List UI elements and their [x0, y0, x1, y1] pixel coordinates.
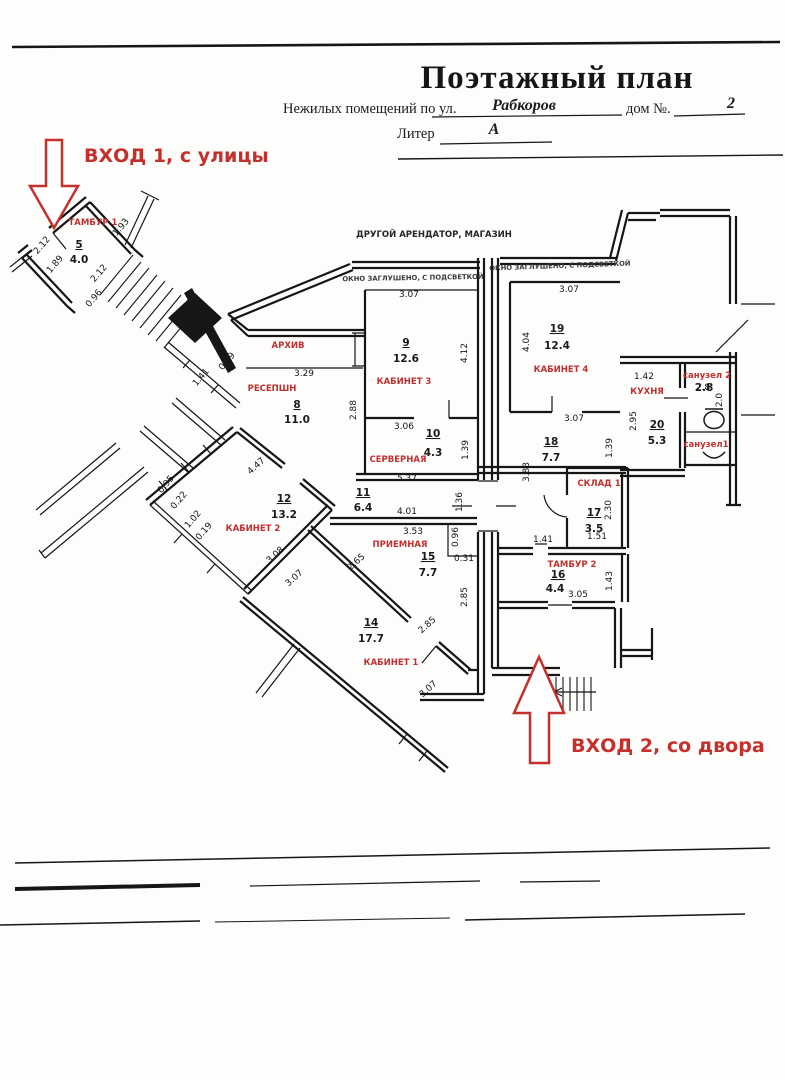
- room-name-label: КУХНЯ: [630, 387, 664, 397]
- dimension-label: 3.07: [564, 414, 584, 424]
- dimension-label: 3.07: [284, 568, 306, 589]
- entrance-1-label: ВХОД 1, с улицы: [84, 145, 269, 167]
- room-number-label: 18: [544, 436, 559, 448]
- dimension-label: 3.06: [394, 422, 414, 432]
- door-arc: [544, 495, 567, 517]
- room-number-label: 8: [293, 399, 300, 411]
- dimension-label: 4.04: [522, 332, 532, 352]
- toilet-icon: [704, 412, 724, 429]
- dimension-label: 0.22: [169, 490, 190, 512]
- room-area-label: 13.2: [271, 509, 297, 521]
- room-name-label: ПРИЕМНАЯ: [373, 540, 428, 550]
- dimension-label: 3.83: [522, 462, 532, 482]
- room-name-label: РЕСЕПШН: [248, 384, 297, 394]
- dimension-label: 3.07: [399, 290, 419, 300]
- room-area-label: 12.6: [393, 353, 419, 365]
- entrance-2-label: ВХОД 2, со двора: [571, 735, 765, 757]
- room-name-label: санузел 2: [683, 371, 731, 381]
- sink-icon: [703, 452, 725, 458]
- room-number-label: 20: [650, 419, 665, 431]
- room-area-label: 12.4: [544, 340, 570, 352]
- bathroom-fixtures: [703, 409, 725, 458]
- room-name-label: санузел1: [683, 440, 728, 450]
- dimension-label: 3.07: [559, 285, 579, 295]
- dimension-label: 0.19: [194, 521, 215, 543]
- room-number-label: 12: [277, 493, 292, 505]
- room-name-label: КАБИНЕТ 3: [377, 377, 432, 387]
- room-name-label: ТАМБУР 1: [69, 218, 118, 228]
- dimension-label: 4.47: [246, 456, 268, 477]
- plan-note-label: ОКНО ЗАГЛУШЕНО, С ПОДСВЕТКОЙ: [342, 272, 484, 283]
- street-value: Рабкоров: [491, 97, 556, 114]
- address-prefix: Нежилых помещений по ул.: [283, 101, 457, 117]
- room-number-label: 14: [364, 617, 379, 629]
- dimension-label: 3.05: [568, 590, 588, 600]
- room-name-label: КАБИНЕТ 1: [364, 658, 419, 668]
- dimension-label: 1.41: [533, 535, 553, 545]
- dimension-label: 3.07: [418, 679, 440, 700]
- room-name-label: КАБИНЕТ 4: [534, 365, 589, 375]
- dimension-label: 1.39: [605, 438, 615, 458]
- room-name-label: КАБИНЕТ 2: [226, 524, 281, 534]
- title-block: Поэтажный план Нежилых помещений по ул. …: [283, 60, 735, 142]
- plan-note-label: ОКНО ЗАГЛУШЕНО, С ПОДСВЕТКОЙ: [489, 259, 631, 273]
- plan-labels: ТАМБУР 154.0АРХИВРЕСЕПШН811.0КАБИНЕТ 391…: [32, 145, 764, 757]
- dimension-label: 1.51: [587, 532, 607, 542]
- room-number-label: 9: [402, 337, 409, 349]
- house-label: дом №.: [626, 101, 671, 117]
- dimension-label: 2.85: [417, 615, 439, 636]
- room-area-label: 4.4: [546, 583, 565, 595]
- dimension-label: 2.88: [349, 400, 359, 420]
- room-area-label: 17.7: [358, 633, 384, 645]
- house-number-value: 2: [726, 95, 735, 112]
- dimension-label: 2.12: [32, 235, 53, 257]
- room-number-label: 16: [551, 569, 566, 581]
- room-name-label: СКЛАД 1: [577, 479, 620, 489]
- dimension-label: 2.95: [629, 411, 639, 431]
- dimension-label: 2.30: [604, 500, 614, 520]
- dimension-label: 2.85: [460, 587, 470, 607]
- entrance-2-arrow-icon: [514, 657, 564, 763]
- floor-plan-drawing: Поэтажный план Нежилых помещений по ул. …: [0, 0, 785, 1080]
- scan-artifact-lines: [0, 848, 770, 925]
- entrance-1-arrow-icon: [30, 140, 78, 228]
- dimension-label: 4.12: [460, 343, 470, 363]
- staircase-top: [100, 255, 197, 348]
- room-number-label: 17: [587, 507, 602, 519]
- liter-label: Литер: [397, 126, 435, 142]
- page-title: Поэтажный план: [421, 60, 694, 96]
- room-area-label: 4.3: [424, 447, 443, 459]
- dimension-label: 2.0: [715, 393, 725, 408]
- dimension-label: 1.42: [634, 372, 654, 382]
- room-name-label: АРХИВ: [272, 341, 305, 351]
- dimension-label: 1.39: [461, 440, 471, 460]
- dimension-label: 1.36: [455, 492, 465, 512]
- dimension-label: 2.12: [89, 263, 110, 285]
- room-number-label: 11: [356, 487, 371, 499]
- dimension-label: 5.37: [397, 474, 417, 484]
- dimension-label: 2.65: [346, 552, 368, 573]
- dimension-label: 3.29: [294, 369, 314, 379]
- dimension-label: 0.96: [451, 527, 461, 547]
- room-area-label: 4.0: [70, 254, 89, 266]
- dimension-label: 1.43: [605, 571, 615, 591]
- dimension-label: 2.8: [696, 383, 711, 393]
- room-name-label: СЕРВЕРНАЯ: [369, 455, 426, 465]
- room-number-label: 5: [75, 239, 82, 251]
- dimension-label: 1.89: [45, 254, 66, 276]
- room-area-label: 11.0: [284, 414, 310, 426]
- scanned-floor-plan-page: Поэтажный план Нежилых помещений по ул. …: [0, 0, 785, 1080]
- dimension-label: 0.96: [84, 288, 105, 310]
- room-area-label: 6.4: [354, 502, 373, 514]
- dimension-label: 3.53: [403, 527, 423, 537]
- dimension-label: 4.01: [397, 507, 417, 517]
- plan-note-label: ДРУГОЙ АРЕНДАТОР, МАГАЗИН: [356, 228, 512, 240]
- room-number-label: 19: [550, 323, 565, 335]
- room-area-label: 7.7: [542, 452, 561, 464]
- room-area-label: 5.3: [648, 435, 667, 447]
- room-number-label: 10: [426, 428, 441, 440]
- room-area-label: 7.7: [419, 567, 438, 579]
- dimension-label: 0.31: [454, 554, 474, 564]
- liter-value: А: [488, 121, 500, 138]
- room-number-label: 15: [421, 551, 436, 563]
